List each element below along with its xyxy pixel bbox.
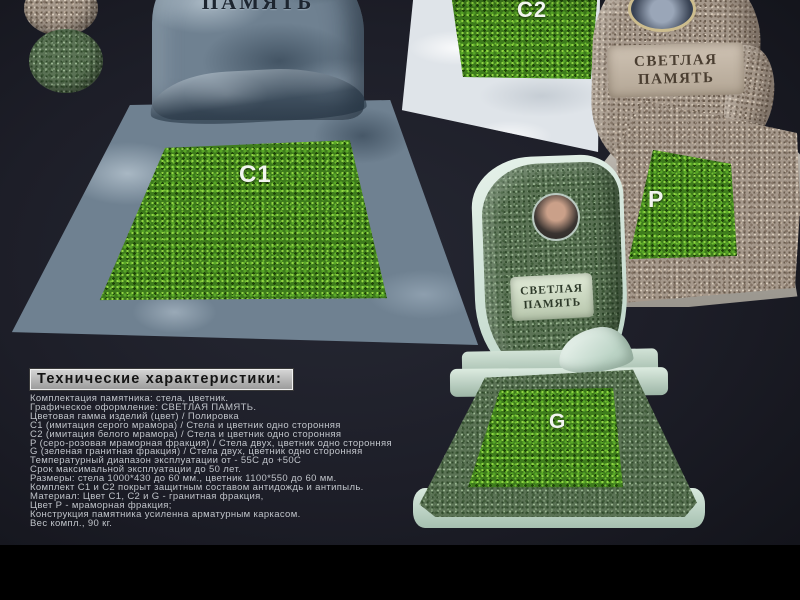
g-label: G	[549, 410, 566, 434]
p-engraving-panel: СВЕТЛАЯ ПАМЯТЬ	[607, 42, 744, 98]
letterbox-bar	[0, 545, 800, 600]
technical-specs-block: Технические характеристики: Комплектация…	[30, 369, 430, 529]
p-engraving-line1: СВЕТЛАЯ	[634, 51, 718, 71]
c2-label: C2	[517, 0, 547, 23]
g-engraving-line2: ПАМЯТЬ	[523, 295, 581, 312]
p-label: P	[648, 186, 664, 213]
specs-lines: Комплектация памятника: стела, цветник.Г…	[30, 395, 430, 529]
g-engraving-plaque: СВЕТЛАЯ ПАМЯТЬ	[510, 273, 594, 321]
c1-engraving: ПАМЯТЬ	[160, 0, 356, 16]
c1-label: C1	[239, 161, 272, 189]
granite-fraction-swatch	[29, 29, 103, 93]
catalog-page: C2 СВЕТЛАЯ ПАМЯТЬ P ПАМЯТЬ C1 СВЕТЛАЯ ПА…	[0, 0, 800, 600]
g-portrait-photo	[532, 193, 580, 241]
spec-line: Вес компл., 90 кг.	[30, 520, 430, 529]
specs-heading: Технические характеристики:	[30, 369, 293, 390]
p-engraving-line2: ПАМЯТЬ	[638, 69, 715, 89]
photo-scene: C2 СВЕТЛАЯ ПАМЯТЬ P ПАМЯТЬ C1 СВЕТЛАЯ ПА…	[0, 0, 800, 545]
